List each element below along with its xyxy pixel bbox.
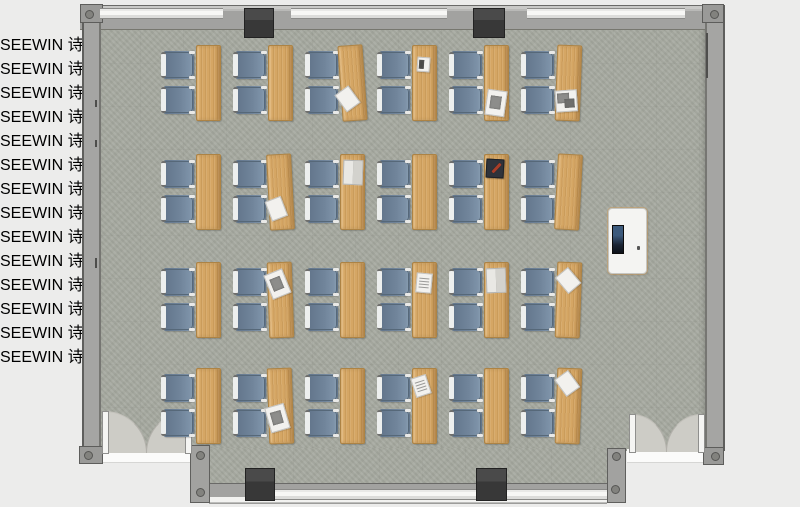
column-marker-dot [611,485,620,494]
chair-front-leg [333,409,339,412]
student-chair [379,303,410,331]
chair-front-leg [333,86,339,89]
chair-front-leg [189,374,195,377]
student-chair [307,51,338,79]
desk-item-open-book [486,268,507,294]
chair-front-leg [333,303,339,306]
chair-front-leg [477,160,483,163]
column-marker-dot [196,488,205,497]
chair-front-leg [189,86,195,89]
chair-front-leg [333,111,339,114]
chair-backrest [521,269,526,295]
student-desk [196,45,221,121]
chair-front-leg [405,409,411,412]
wall-joint [95,100,97,107]
student-chair [451,51,482,79]
paper-text-line [419,278,429,280]
student-chair [235,160,266,188]
chair-backrest [233,304,238,330]
paper-text-line [419,287,429,289]
chair-front-leg [405,328,411,331]
student-desk [196,368,221,444]
student-chair [523,160,554,188]
chair-front-leg [549,268,555,271]
student-chair [235,374,266,402]
student-chair [163,51,194,79]
student-chair [379,195,410,223]
floor-plan-canvas: SEEWIN 诗敏SEEWIN 诗敏SEEWIN 诗敏SEEWIN 诗敏SEEW… [0,0,800,507]
chair-backrest [161,410,166,436]
chair-front-leg [333,399,339,402]
paper-photo-block [269,276,284,292]
chair-front-leg [261,111,267,114]
chair-front-leg [189,185,195,188]
door-leaf [102,411,109,454]
chair-front-leg [333,76,339,79]
chair-front-leg [333,185,339,188]
paper-text-line [419,284,429,286]
chair-backrest [449,161,454,187]
chair-front-leg [333,160,339,163]
chair-front-leg [261,76,267,79]
student-chair [307,409,338,437]
note-dark-block [419,60,425,69]
chair-front-leg [477,328,483,331]
chair-backrest [449,304,454,330]
chair-backrest [521,161,526,187]
column-marker-dot [84,451,93,460]
chair-front-leg [549,303,555,306]
column-marker-dot [612,452,621,461]
desk-item-photo-stack [555,89,578,112]
chair-front-leg [261,399,267,402]
student-chair [523,374,554,402]
chair-front-leg [405,86,411,89]
desk-item-paper [554,370,580,397]
chair-front-leg [261,51,267,54]
door-leaf [698,414,705,453]
chair-front-leg [405,293,411,296]
student-chair [451,160,482,188]
student-chair [163,86,194,114]
structural-pillar [244,8,274,38]
student-desk [266,153,295,230]
chair-backrest [305,87,310,113]
chair-backrest [161,304,166,330]
structural-pillar [245,468,275,501]
chair-front-leg [405,220,411,223]
chair-front-leg [477,220,483,223]
chair-front-leg [477,111,483,114]
chair-front-leg [405,374,411,377]
student-chair [451,86,482,114]
student-chair [163,303,194,331]
chair-backrest [305,269,310,295]
student-chair [523,409,554,437]
chair-front-leg [189,328,195,331]
structural-pillar [473,8,505,38]
chair-front-leg [261,220,267,223]
desk-item-paper-with-text [410,374,431,398]
chair-backrest [161,196,166,222]
chair-backrest [449,269,454,295]
chair-front-leg [549,86,555,89]
student-chair [235,303,266,331]
student-chair [307,160,338,188]
chair-front-leg [189,111,195,114]
chair-backrest [161,161,166,187]
door-leaf [629,414,636,453]
student-desk [554,153,583,230]
chair-front-leg [405,111,411,114]
paper-photo-block [270,410,284,426]
student-desk [412,368,437,444]
chair-backrest [449,410,454,436]
chair-backrest [377,410,382,436]
student-chair [235,195,266,223]
student-chair [163,409,194,437]
chair-backrest [305,196,310,222]
window-band [291,8,447,19]
window-band [273,489,476,500]
student-desk [484,262,509,338]
chair-backrest [521,304,526,330]
teacher-computer-unit [610,256,619,267]
student-desk [555,368,583,445]
chair-backrest [521,52,526,78]
student-desk [337,44,367,122]
student-chair [379,51,410,79]
chair-front-leg [477,434,483,437]
chair-backrest [161,87,166,113]
student-chair [307,195,338,223]
chair-backrest [521,196,526,222]
student-chair [451,268,482,296]
chair-front-leg [189,409,195,412]
student-desk [267,262,295,339]
chair-front-leg [549,374,555,377]
chair-front-leg [189,160,195,163]
chair-backrest [305,410,310,436]
student-desk [267,368,295,445]
student-chair [163,268,194,296]
chair-front-leg [189,303,195,306]
chair-front-leg [405,185,411,188]
chair-front-leg [549,76,555,79]
student-chair [523,268,554,296]
chair-front-leg [549,399,555,402]
chair-front-leg [333,293,339,296]
chair-front-leg [549,185,555,188]
chair-backrest [377,269,382,295]
chair-front-leg [261,303,267,306]
student-chair [235,51,266,79]
window-band [505,489,607,500]
teacher-monitor [612,225,624,254]
desk-item-paper-with-text [415,272,433,293]
chair-backrest [305,304,310,330]
student-desk [555,45,583,122]
student-chair [523,195,554,223]
student-chair [307,268,338,296]
chair-front-leg [189,195,195,198]
chair-front-leg [477,293,483,296]
chair-front-leg [405,160,411,163]
chair-backrest [161,52,166,78]
student-chair [163,374,194,402]
chair-backrest [233,269,238,295]
chair-front-leg [261,185,267,188]
chair-front-leg [477,374,483,377]
chair-front-leg [405,303,411,306]
student-chair [379,409,410,437]
chair-front-leg [549,409,555,412]
chair-backrest [305,375,310,401]
chair-front-leg [549,51,555,54]
student-desk [340,262,365,338]
desk-item-photo-paper [264,403,290,434]
student-chair [523,51,554,79]
student-chair [235,268,266,296]
student-chair [523,303,554,331]
chair-backrest [233,87,238,113]
chair-front-leg [477,409,483,412]
chair-backrest [521,375,526,401]
chair-backrest [377,196,382,222]
chair-front-leg [477,303,483,306]
student-desk [412,262,437,338]
column-marker-dot [710,10,719,19]
chair-front-leg [549,195,555,198]
student-desk [340,368,365,444]
chair-front-leg [261,434,267,437]
student-chair [451,374,482,402]
student-desk [555,262,583,339]
chair-front-leg [333,374,339,377]
right-wall [705,5,725,451]
wall-joint [95,140,97,147]
structural-pillar [476,468,507,501]
chair-front-leg [477,86,483,89]
chair-backrest [233,375,238,401]
student-desk [196,154,221,230]
chair-front-leg [477,76,483,79]
chair-backrest [377,375,382,401]
chair-front-leg [405,76,411,79]
paper-text-line [417,388,427,392]
book-page [496,269,506,292]
chair-backrest [233,196,238,222]
chair-front-leg [189,268,195,271]
chair-front-leg [189,293,195,296]
chair-front-leg [261,293,267,296]
window-band [527,8,685,19]
chair-backrest [233,52,238,78]
student-chair [523,86,554,114]
student-chair [163,195,194,223]
chair-backrest [305,161,310,187]
student-chair [379,268,410,296]
student-chair [235,86,266,114]
student-desk [484,154,509,230]
chair-front-leg [405,434,411,437]
student-chair [307,303,338,331]
chair-backrest [449,52,454,78]
chair-front-leg [549,293,555,296]
student-chair [451,303,482,331]
student-desk [196,262,221,338]
desk-item-dark-book [486,159,505,179]
student-chair [235,409,266,437]
chair-backrest [521,410,526,436]
column-marker-dot [711,452,720,461]
chair-backrest [377,52,382,78]
chair-front-leg [477,195,483,198]
chair-backrest [449,375,454,401]
chair-front-leg [405,195,411,198]
desk-item-note [416,57,430,73]
chair-backrest [377,161,382,187]
chair-front-leg [261,328,267,331]
chair-front-leg [333,268,339,271]
chair-front-leg [477,268,483,271]
paper-text-line [419,281,429,283]
chair-front-leg [477,51,483,54]
chair-front-leg [333,220,339,223]
chair-backrest [305,52,310,78]
student-desk [484,45,509,121]
desk-item-photo-paper [484,89,507,118]
teacher-mouse [637,246,640,250]
chair-front-leg [189,51,195,54]
student-chair [451,409,482,437]
wall-joint [95,258,97,268]
book-page [353,161,363,184]
chair-front-leg [261,86,267,89]
column-marker-dot [196,451,205,460]
left-wall [82,5,101,450]
desk-item-open-book [343,160,364,186]
chair-front-leg [405,51,411,54]
chair-front-leg [333,328,339,331]
chair-backrest [233,410,238,436]
chair-front-leg [405,268,411,271]
chair-backrest [449,87,454,113]
wall-joint [706,33,708,78]
chair-front-leg [189,434,195,437]
chair-front-leg [189,399,195,402]
column-marker-dot [85,10,94,19]
student-desk [268,45,293,121]
chair-front-leg [477,185,483,188]
chair-front-leg [189,220,195,223]
student-chair [379,160,410,188]
chair-front-leg [189,76,195,79]
chair-front-leg [261,195,267,198]
chair-backrest [161,375,166,401]
chair-backrest [377,87,382,113]
chair-front-leg [333,434,339,437]
student-desk [340,154,365,230]
student-chair [307,374,338,402]
desk-item-paper [555,267,582,294]
paper-photo-block [489,95,502,109]
window-band [100,8,223,19]
chair-front-leg [549,160,555,163]
student-desk [412,45,437,121]
pen-on-book [491,163,501,174]
student-chair [379,86,410,114]
chair-backrest [377,304,382,330]
student-chair [379,374,410,402]
paper-photo-block [564,98,575,108]
chair-front-leg [333,195,339,198]
chair-backrest [233,161,238,187]
chair-backrest [161,269,166,295]
chair-front-leg [405,399,411,402]
student-chair [307,86,338,114]
chair-backrest [521,87,526,113]
teacher-chair [0,0,27,31]
chair-backrest [449,196,454,222]
student-chair [451,195,482,223]
chair-front-leg [477,399,483,402]
student-desk [412,154,437,230]
student-chair [163,160,194,188]
desk-item-photo-paper [263,268,291,300]
student-desk [484,368,509,444]
